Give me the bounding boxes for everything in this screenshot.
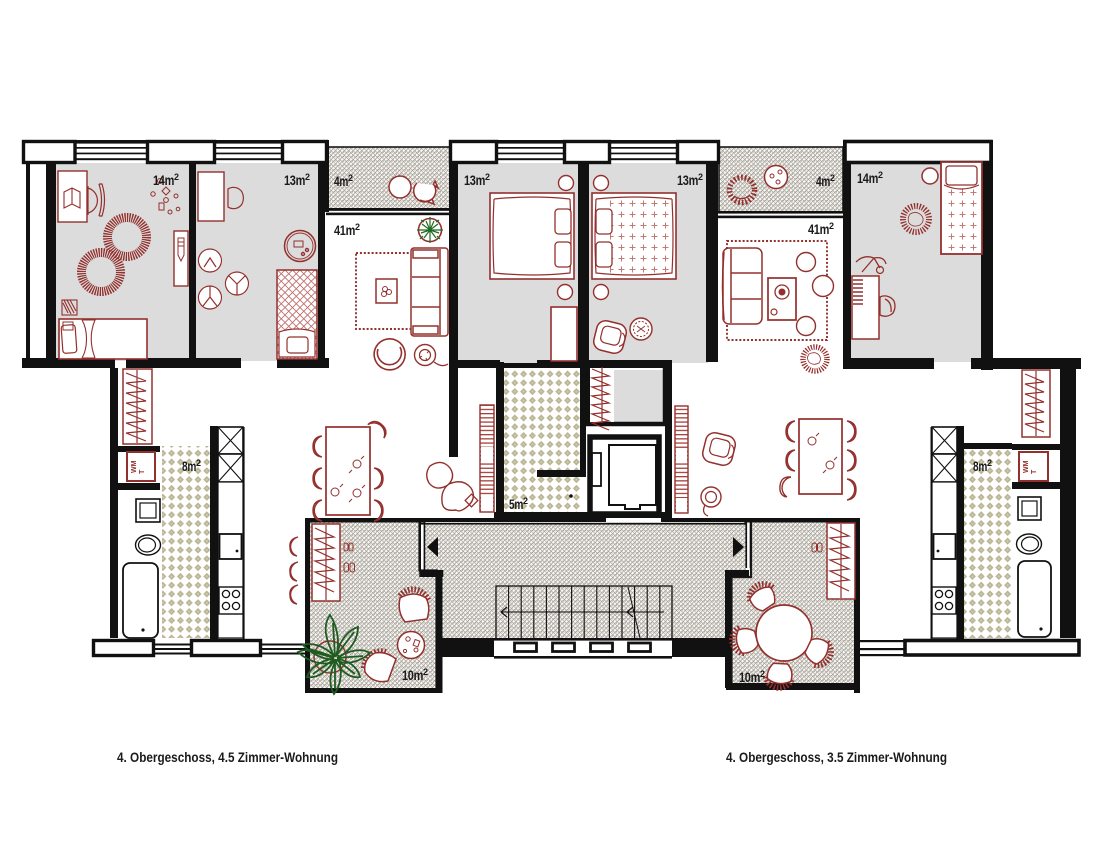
svg-text:WM: WM xyxy=(131,460,138,473)
svg-text:4m: 4m xyxy=(334,173,348,189)
svg-text:13m: 13m xyxy=(464,172,485,188)
svg-text:2: 2 xyxy=(829,221,834,231)
svg-text:2: 2 xyxy=(523,496,528,506)
svg-text:8m: 8m xyxy=(182,458,196,474)
svg-text:2: 2 xyxy=(305,172,310,182)
svg-text:10m: 10m xyxy=(402,667,423,683)
svg-text:2: 2 xyxy=(174,172,179,182)
svg-text:2: 2 xyxy=(423,667,428,677)
svg-text:4m: 4m xyxy=(816,173,830,189)
svg-text:2: 2 xyxy=(760,669,765,679)
svg-text:41m: 41m xyxy=(334,222,355,238)
svg-text:4. Obergeschoss, 3.5 Zimmer-Wo: 4. Obergeschoss, 3.5 Zimmer-Wohnung xyxy=(726,749,947,765)
svg-text:14m: 14m xyxy=(857,170,878,186)
svg-text:2: 2 xyxy=(355,222,360,232)
svg-text:2: 2 xyxy=(196,458,201,468)
svg-text:13m: 13m xyxy=(677,172,698,188)
svg-text:4. Obergeschoss, 4.5 Zimmer-Wo: 4. Obergeschoss, 4.5 Zimmer-Wohnung xyxy=(117,749,338,765)
svg-text:T: T xyxy=(139,469,146,474)
svg-text:2: 2 xyxy=(987,458,992,468)
svg-text:14m: 14m xyxy=(153,172,174,188)
svg-text:10m: 10m xyxy=(739,669,760,685)
svg-text:13m: 13m xyxy=(284,172,305,188)
svg-text:2: 2 xyxy=(878,170,883,180)
svg-text:5m: 5m xyxy=(509,496,523,512)
svg-text:T: T xyxy=(1031,469,1038,474)
svg-text:2: 2 xyxy=(485,172,490,182)
svg-text:2: 2 xyxy=(830,173,835,183)
svg-text:41m: 41m xyxy=(808,221,829,237)
svg-text:2: 2 xyxy=(348,173,353,183)
svg-text:2: 2 xyxy=(698,172,703,182)
svg-text:WM: WM xyxy=(1023,460,1030,473)
svg-text:8m: 8m xyxy=(973,458,987,474)
